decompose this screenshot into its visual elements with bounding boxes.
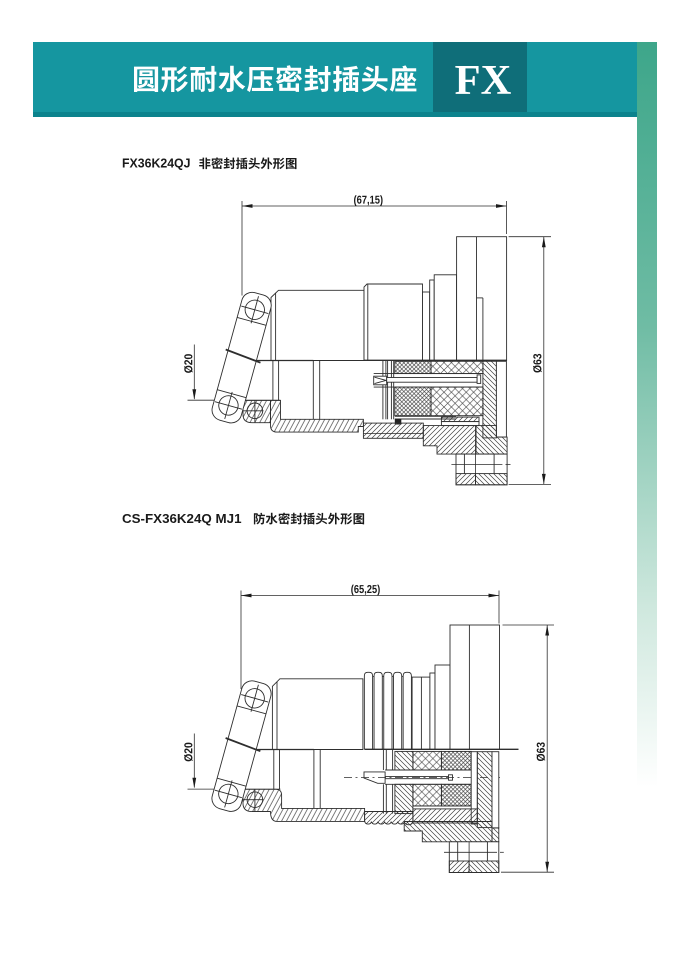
svg-text:FX36K24QJ: FX36K24QJ xyxy=(122,156,191,171)
svg-text:FX: FX xyxy=(455,57,512,104)
svg-text:CS-FX36K24Q MJ1: CS-FX36K24Q MJ1 xyxy=(122,511,242,526)
